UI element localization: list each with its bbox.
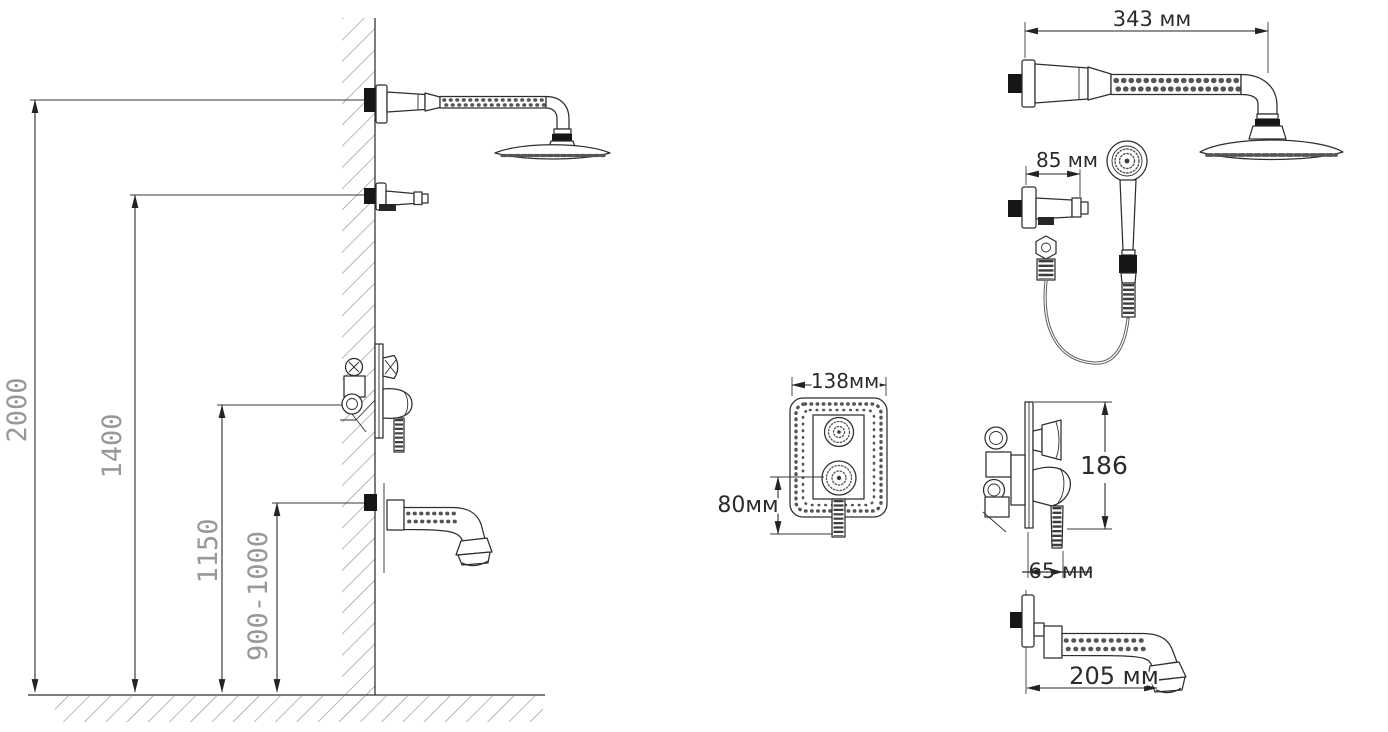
dim-label-343mm: 343 мм xyxy=(1113,7,1191,31)
flange xyxy=(1022,60,1035,107)
shower-hose xyxy=(1045,281,1128,363)
holder-arm xyxy=(386,191,414,206)
wall-anchor xyxy=(364,188,376,204)
floor-hatching xyxy=(55,696,543,722)
floor-section xyxy=(28,695,545,722)
shower-system-technical-drawing: 2000 1400 1150 900-1000 xyxy=(0,0,1388,732)
flange xyxy=(1022,595,1034,647)
hose-hex-nut xyxy=(1036,236,1056,259)
dim-label-65mm: 65 мм xyxy=(1028,559,1093,583)
holder-clip xyxy=(1038,217,1054,225)
component-mixer-side-view: 186 65 мм xyxy=(983,402,1128,583)
spout-base xyxy=(1044,626,1062,658)
knob-stem xyxy=(1033,429,1042,452)
overhead-shower-arm-installed xyxy=(364,85,610,159)
dimension-total-height: 2000 xyxy=(2,100,364,692)
installation-view: 2000 1400 1150 900-1000 xyxy=(2,18,610,722)
arm-body xyxy=(387,92,425,112)
hand-shower-handle xyxy=(1120,180,1136,250)
top-knob xyxy=(1042,420,1061,460)
wall-anchor xyxy=(1008,74,1022,93)
component-hand-shower xyxy=(1107,141,1147,317)
wall-section xyxy=(342,18,375,695)
drawing-canvas: 2000 1400 1150 900-1000 xyxy=(0,0,1388,732)
head-nut xyxy=(1249,126,1286,139)
connector-band xyxy=(1255,119,1280,126)
valve-core xyxy=(1011,455,1025,505)
dim-label-186: 186 xyxy=(1080,451,1128,480)
dim-label-138mm: 138мм xyxy=(811,369,879,393)
component-holder: 85 мм xyxy=(1008,148,1098,280)
arm-body xyxy=(1035,64,1088,103)
tub-spout-installed xyxy=(364,483,492,573)
connecting-hose xyxy=(1045,281,1128,363)
valve-body-bottom xyxy=(985,497,1009,517)
wall-anchor xyxy=(1008,200,1022,217)
wall-anchor xyxy=(364,494,377,511)
arm-elbow xyxy=(546,97,569,130)
wall-anchor xyxy=(364,88,376,112)
spout-base xyxy=(387,500,404,530)
wall-hatching xyxy=(342,18,375,695)
component-view: 343 мм 85 мм xyxy=(717,7,1343,694)
flange xyxy=(376,85,387,123)
dim-label-1400: 1400 xyxy=(97,413,128,478)
wall-anchor xyxy=(1010,612,1023,628)
arm-decorated-tube xyxy=(1111,75,1241,95)
arm-cone xyxy=(425,93,440,111)
component-control-panel: 138мм 80мм xyxy=(717,369,887,537)
dim-label-85mm: 85 мм xyxy=(1036,148,1098,172)
holder-arm xyxy=(1036,198,1072,219)
mixer-handle xyxy=(1033,467,1070,506)
supply-port-bottom xyxy=(342,394,362,414)
dim-label-1150: 1150 xyxy=(193,518,224,583)
dim-label-205mm: 205 мм xyxy=(1069,662,1159,690)
valve-body-top xyxy=(986,452,1011,477)
handle-grip-band xyxy=(1119,255,1137,273)
flange xyxy=(1022,187,1036,228)
dimension-hand-shower-holder-height: 1400 xyxy=(97,195,364,692)
component-shower-arm: 343 мм xyxy=(1008,7,1343,160)
dim-label-80mm: 80мм xyxy=(717,493,778,518)
dim-label-2000: 2000 xyxy=(2,377,33,442)
holder-clip xyxy=(379,204,396,211)
connector-band xyxy=(552,134,572,141)
dim-label-900-1000: 900-1000 xyxy=(243,531,274,661)
supply-port-top xyxy=(985,427,1007,449)
arm-cone xyxy=(1088,67,1111,100)
arm-elbow xyxy=(1241,75,1277,115)
component-spout: 205 мм xyxy=(1010,590,1186,694)
